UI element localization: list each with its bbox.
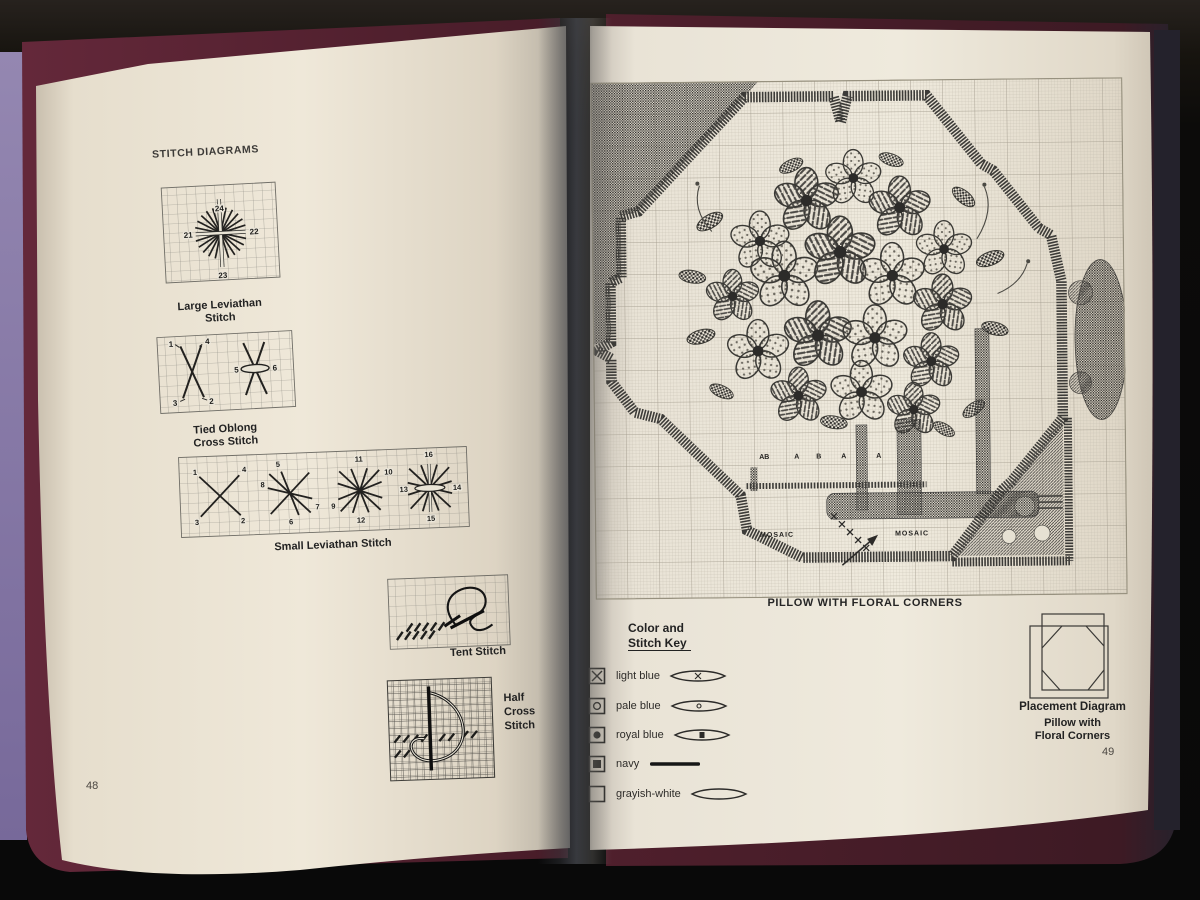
key-label: royal blue — [616, 729, 664, 741]
stitch-number: 21 — [184, 231, 194, 240]
key-label: grayish-white — [616, 788, 681, 800]
right-cover-edge — [1154, 30, 1180, 830]
tied-oblong-diagram: 1 4 3 2 5 6 — [154, 327, 301, 426]
placement-corner-cut — [1086, 626, 1104, 646]
stitch-number: 5 — [276, 460, 281, 469]
key-title: Color and Stitch Key — [628, 621, 691, 651]
book-photo-scene: STITCH DIAGRAMS 24 21 22 23 Large Leviat… — [0, 0, 1200, 900]
key-label: light blue — [616, 670, 660, 682]
stitch-number: 23 — [218, 271, 228, 280]
placement-diagram — [1022, 612, 1122, 700]
stitch-number: 6 — [289, 517, 294, 526]
half-cross-diagram — [384, 674, 502, 786]
key-symbol-filled-square-icon — [588, 755, 607, 774]
key-label: pale blue — [616, 700, 661, 712]
stitch-number: 12 — [357, 515, 366, 524]
key-symbol-circle-icon — [588, 697, 607, 716]
placement-corner-cut — [1042, 626, 1062, 648]
yarn-line-icon — [648, 757, 706, 771]
yarn-skein-icon — [670, 699, 728, 713]
key-label: navy — [616, 758, 639, 770]
pillow-chart: AB A B A A MOSAIC MOSAIC — [590, 77, 1127, 600]
stitch-number: 14 — [453, 483, 463, 492]
stitch-number: 8 — [260, 480, 265, 489]
base-mound — [827, 491, 1039, 519]
yarn-skein-icon — [673, 728, 731, 742]
placement-corner-cut — [1088, 670, 1104, 690]
stitch-number: 24 — [215, 204, 225, 213]
column-letter: A — [841, 453, 846, 460]
key-row: royal blue — [588, 725, 731, 745]
key-symbol-x-icon — [588, 667, 607, 686]
placement-title: Placement Diagram — [1010, 701, 1135, 713]
chart-caption: PILLOW WITH FLORAL CORNERS — [735, 597, 995, 609]
tent-stitch-diagram — [385, 572, 516, 655]
yarn-skein-icon — [690, 787, 748, 801]
caption-line: Stitch — [504, 717, 574, 733]
key-title-line: Color and — [628, 621, 691, 636]
stitch-number: 15 — [427, 514, 436, 523]
placement-corner-cut — [1042, 670, 1060, 690]
stitch-number: 13 — [399, 485, 408, 494]
mosaic-label: MOSAIC — [760, 532, 794, 539]
column-letter: B — [816, 453, 821, 460]
key-title-line: Stitch Key — [628, 636, 691, 651]
stitch-number: 9 — [331, 502, 336, 511]
placement-subtitle-line: Floral Corners — [1010, 730, 1135, 743]
left-page-number: 48 — [86, 780, 98, 792]
stitch-grid — [387, 677, 494, 781]
stitch-number: 22 — [249, 227, 259, 236]
diagram-caption: Half Cross Stitch — [503, 689, 574, 733]
right-page-number: 49 — [1102, 746, 1114, 758]
stitch-number: 16 — [424, 450, 433, 459]
stitch-number: 1 — [193, 468, 198, 477]
stitch-number: 2 — [241, 516, 246, 525]
key-row: pale blue — [588, 696, 728, 716]
column-letter: AB — [759, 454, 769, 461]
column-letter: A — [876, 453, 881, 460]
key-symbol-dot-icon — [588, 726, 607, 745]
key-row: navy — [588, 754, 706, 774]
small-leviathan-diagram: 1 4 3 2 5 8 7 6 11 10 9 12 16 13 14 15 — [176, 442, 471, 543]
mosaic-label: MOSAIC — [895, 530, 929, 537]
stitch-number: 10 — [384, 467, 393, 476]
stitch-number: 11 — [355, 454, 363, 463]
key-row: light blue — [588, 666, 727, 686]
key-row: grayish-white — [588, 784, 748, 804]
placement-subtitle: Pillow with Floral Corners — [1010, 717, 1135, 743]
stitch-number: 7 — [315, 502, 320, 511]
key-symbol-empty-box-icon — [588, 785, 607, 804]
yarn-skein-icon — [669, 669, 727, 683]
stitch-number: 3 — [195, 518, 200, 527]
placement-subtitle-line: Pillow with — [1010, 717, 1135, 730]
color-stitch-key: light blue pale blue royal blu — [588, 666, 818, 806]
right-stem-column — [975, 329, 991, 494]
column-letter: A — [794, 454, 799, 461]
large-leviathan-diagram: 24 21 22 23 — [157, 180, 287, 300]
